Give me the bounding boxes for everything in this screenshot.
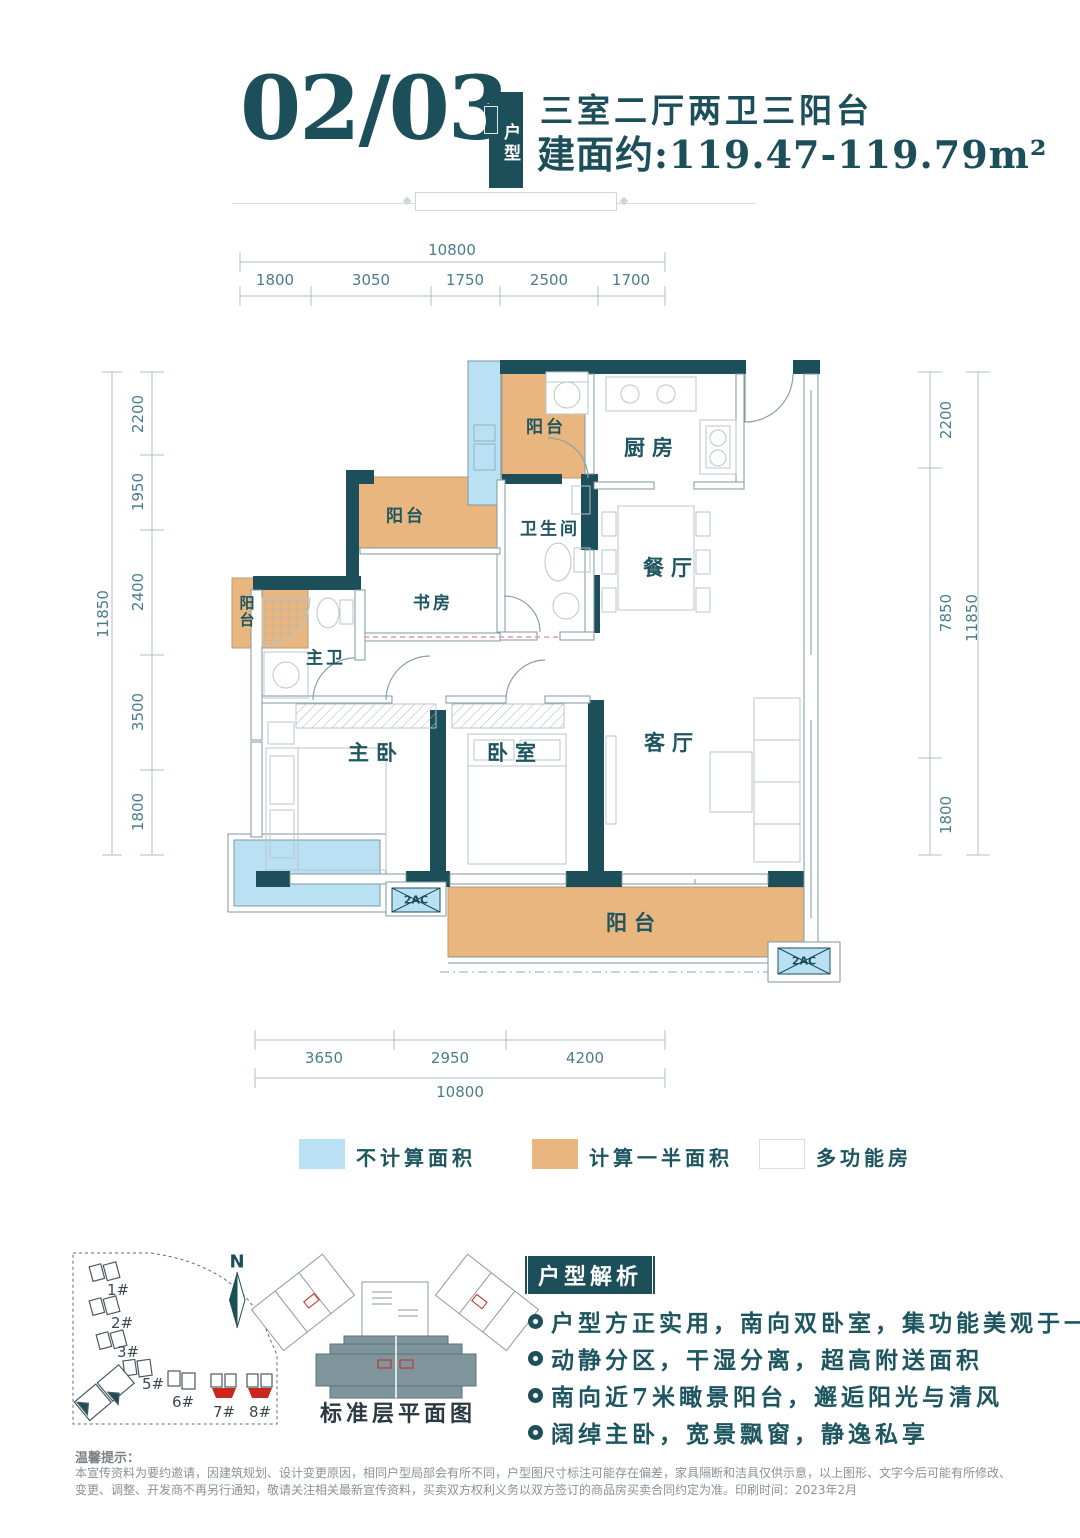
- north-compass-icon: [229, 1272, 245, 1328]
- unit-type-badge: 户型: [489, 92, 523, 188]
- room-label-kitchen: 厨房: [624, 432, 680, 462]
- dim-right-1: 2200: [937, 401, 955, 439]
- unit-type-badge-label: 户型: [500, 123, 520, 165]
- analysis-bullet-4: 阔绰主卧，宽景飘窗，静逸私享: [528, 1415, 929, 1449]
- north-label: N: [229, 1252, 244, 1273]
- building-label-8: 8#: [249, 1403, 271, 1421]
- highlight-building-7: [212, 1388, 236, 1398]
- building-label-1: 1#: [107, 1281, 129, 1299]
- legend-label-multi: 多功能房: [816, 1142, 912, 1171]
- building-label-5: 5#: [142, 1375, 164, 1393]
- room-label-balcony-side: 阳台: [237, 595, 258, 629]
- uncounted-bay: [234, 840, 380, 906]
- divider-ornament: [415, 192, 617, 211]
- analysis-bullet-text: 动静分区，干湿分离，超高附送面积: [551, 1341, 983, 1375]
- analysis-title-badge: 户型解析: [524, 1256, 656, 1294]
- dim-left-5: 1800: [129, 793, 147, 831]
- bullet-icon: [528, 1314, 543, 1329]
- analysis-bullet-text: 阔绰主卧，宽景飘窗，静逸私享: [551, 1415, 929, 1449]
- dim-left-total: 11850: [94, 590, 112, 638]
- room-label-master-bedroom: 主卧: [348, 737, 404, 767]
- analysis-bullet-2: 动静分区，干湿分离，超高附送面积: [528, 1341, 983, 1375]
- dim-right-total: 11850: [963, 594, 981, 642]
- legend-label-half: 计算一半面积: [589, 1142, 733, 1171]
- dim-top-total: 10800: [428, 241, 476, 259]
- room-label-balcony-mid: 阳台: [386, 502, 426, 527]
- legend-swatch-uncounted: [299, 1139, 345, 1169]
- dim-bottom-2: 2950: [431, 1049, 469, 1067]
- ac-label-1: 2AC: [404, 894, 428, 907]
- dim-right-3: 1800: [937, 796, 955, 834]
- mini-plan-caption: 标准层平面图: [320, 1396, 476, 1428]
- dim-left-1: 2200: [129, 395, 147, 433]
- bullet-icon: [528, 1388, 543, 1403]
- bullet-icon: [528, 1351, 543, 1366]
- legend-swatch-multi: [759, 1139, 805, 1169]
- dim-left-3: 2400: [129, 573, 147, 611]
- badge-seal-icon: [484, 106, 498, 134]
- dim-top-1: 1800: [256, 271, 294, 289]
- analysis-bullet-text: 户型方正实用，南向双卧室，集功能美观于一体: [551, 1304, 1080, 1338]
- dim-bottom-total: 10800: [436, 1083, 484, 1101]
- building-label-7: 7#: [213, 1403, 235, 1421]
- building-label-6: 6#: [172, 1393, 194, 1411]
- dim-bottom-1: 3650: [305, 1049, 343, 1067]
- building-label-2: 2#: [111, 1314, 133, 1332]
- highlight-building-8: [248, 1388, 272, 1398]
- dim-right-2: 7850: [937, 594, 955, 632]
- ac-label-2: 2AC: [792, 955, 816, 968]
- footer-line-2: 变更、调整、开发商不再另行通知，敬请关注相关最新宣传资料，买卖双方权利义务以双方…: [75, 1481, 857, 1498]
- dim-top-4: 2500: [530, 271, 568, 289]
- analysis-bullet-1: 户型方正实用，南向双卧室，集功能美观于一体: [528, 1304, 1080, 1338]
- room-label-bathroom: 卫生间: [520, 515, 580, 540]
- room-label-bedroom: 卧室: [487, 737, 543, 767]
- room-label-balcony-top: 阳台: [526, 413, 566, 438]
- dim-left-2: 1950: [129, 473, 147, 511]
- analysis-title: 户型解析: [538, 1259, 642, 1291]
- footer-line-1: 本宣传资料为要约邀请，因建筑规划、设计变更原因，相同户型局部会有所不同，户型图尺…: [75, 1464, 1011, 1481]
- room-label-living: 客厅: [644, 727, 700, 757]
- building-label-3: 3#: [117, 1343, 139, 1361]
- dim-top-5: 1700: [612, 271, 650, 289]
- room-label-balcony-bottom: 阳台: [606, 907, 662, 937]
- dim-bottom-3: 4200: [566, 1049, 604, 1067]
- unit-number: 02/03: [240, 64, 507, 152]
- bullet-icon: [528, 1425, 543, 1440]
- dim-top-3: 1750: [446, 271, 484, 289]
- floorplan-flyer: 02/03 户型 三室二厅两卫三阳台 建面约:119.47-119.79m² 1…: [0, 0, 1080, 1538]
- room-label-dining: 餐厅: [643, 552, 699, 582]
- mini-plan-drawing: [252, 1254, 539, 1398]
- dim-left-4: 3500: [129, 693, 147, 731]
- analysis-bullet-3: 南向近7米瞰景阳台，邂逅阳光与清风: [528, 1378, 1003, 1412]
- analysis-bullet-text: 南向近7米瞰景阳台，邂逅阳光与清风: [551, 1378, 1003, 1412]
- uncounted-strip: [468, 361, 501, 505]
- legend-swatch-half: [532, 1139, 578, 1169]
- dim-top-2: 3050: [352, 271, 390, 289]
- room-label-master-bath: 主卫: [306, 644, 346, 669]
- area-line: 建面约:119.47-119.79m²: [537, 124, 1048, 179]
- room-label-study: 书房: [413, 589, 453, 614]
- legend-label-uncounted: 不计算面积: [356, 1142, 476, 1171]
